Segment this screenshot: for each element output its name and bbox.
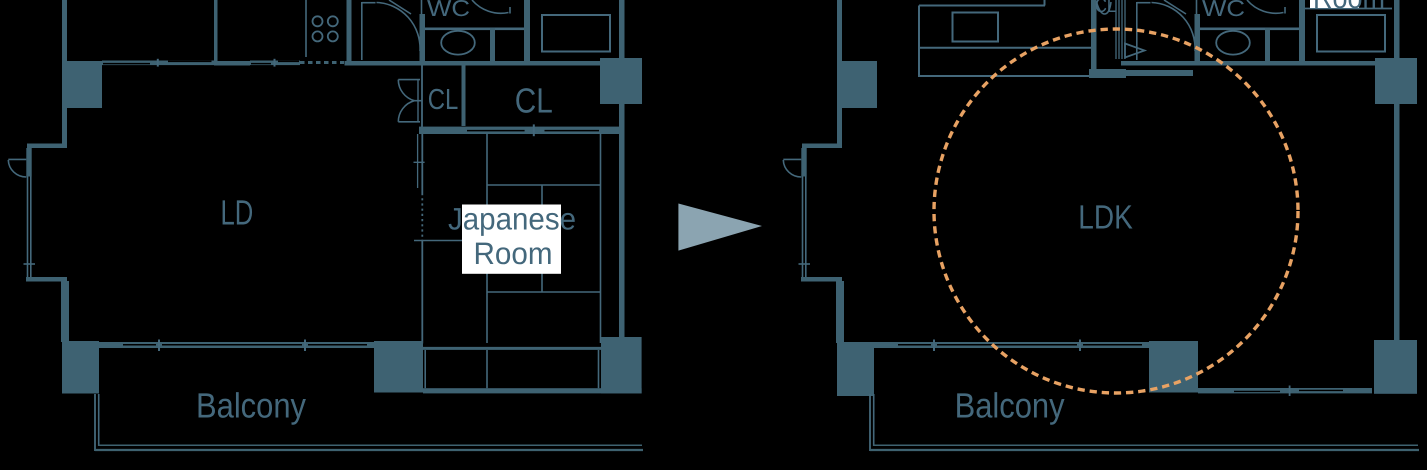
svg-text:Balcony: Balcony <box>955 387 1065 426</box>
svg-text:CL: CL <box>515 81 553 120</box>
svg-text:LD: LD <box>221 194 254 233</box>
svg-text:Balcony: Balcony <box>196 387 306 426</box>
svg-text:Japanese: Japanese <box>448 202 576 237</box>
svg-text:CL: CL <box>428 84 459 116</box>
svg-text:CL: CL <box>1095 0 1116 17</box>
svg-text:WC: WC <box>427 0 470 21</box>
svg-text:Room: Room <box>1313 0 1385 15</box>
svg-text:Room: Room <box>474 236 553 271</box>
svg-text:LDK: LDK <box>1078 199 1133 236</box>
svg-text:WC: WC <box>1202 0 1245 21</box>
